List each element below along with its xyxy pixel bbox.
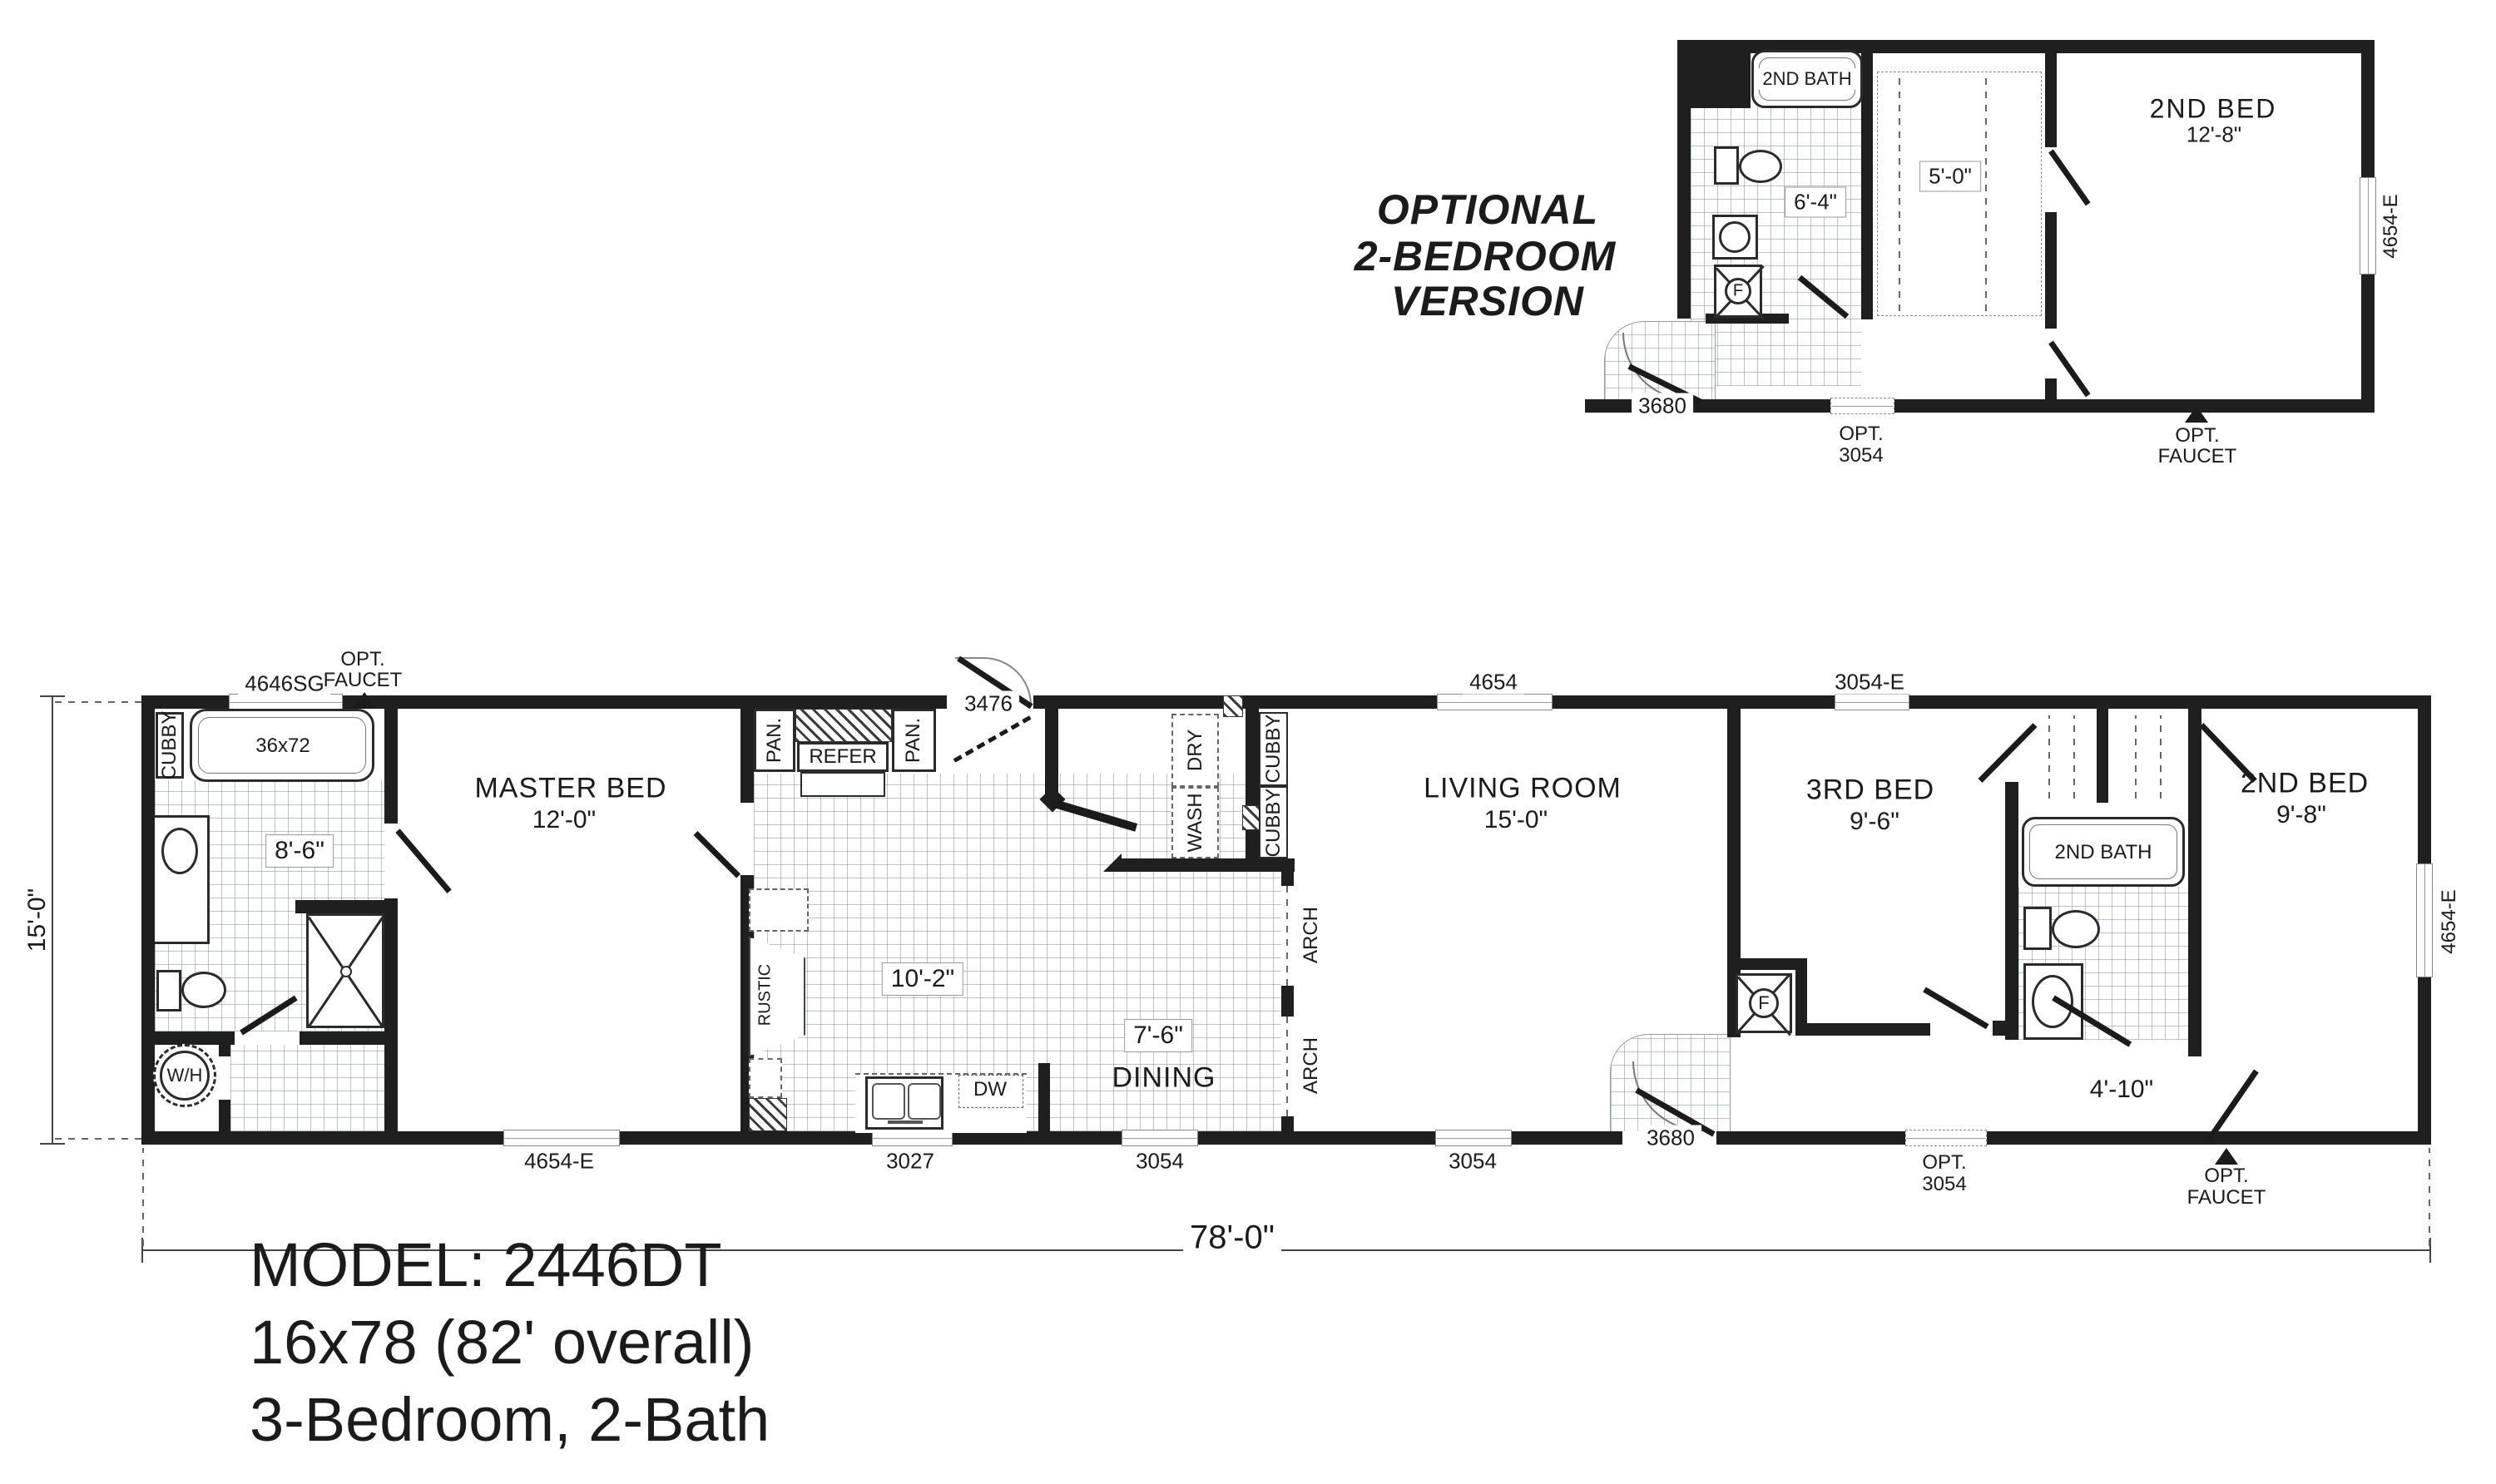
wall-bath-lower-right [300,1031,384,1045]
optional-wall-bottom [1585,399,2375,413]
wall-bath2-right [2188,709,2201,1056]
optional-wall-bath-closet [1861,53,1873,319]
wall-bath-master-lower [384,898,398,1145]
wall-wh-right-lower [219,1100,230,1131]
furnace-label: F [1758,992,1769,1014]
model-config: 3-Bedroom, 2-Bath [250,1384,770,1455]
window-4654e-right [2416,863,2433,977]
depth-dimension-label: 15'-0" [23,882,52,958]
optional-wall-closet-bed-3 [2045,378,2057,399]
dryer-label: DRY [1184,730,1207,771]
optional-bath-dim: 6'-4" [1785,187,1846,218]
depth-dimension-tick-top [40,695,65,697]
door-3476-label: 3476 [958,691,1019,717]
bed3-door [1923,987,1988,1029]
optional-bed-label: 2ND BED [2150,94,2277,125]
optional-window-opt3054-label1: OPT. [1839,423,1883,446]
bath-cubby-label: CUBBY [158,711,181,780]
refrigerator-body [800,772,885,797]
optional-window-opt3054 [1830,398,1894,414]
master-bed-door [694,831,741,878]
optional-wall-closet-bed-1 [2045,40,2057,147]
bath2-sink-bowl [2032,975,2073,1028]
wall-hall-bed3 [1795,1023,1930,1036]
wall-utility-cap [1103,853,1122,872]
door-3680-label: 3680 [1640,1125,1701,1151]
optional-wall-left [1677,40,1691,319]
window-4654-top [1437,694,1553,710]
optional-faucet-label1: OPT. [2175,424,2219,448]
depth-dimension-tick-bottom [40,1143,65,1145]
window-3054-living [1435,1130,1512,1146]
window-opt3054-main-label1: OPT. [1922,1151,1966,1175]
kitchen-cabinet-hatch-corner [749,1098,787,1131]
bed2-label: 2ND BED [2241,768,2369,800]
kitchen-cabinet-lower [749,1058,782,1098]
kitchen-hutch-label: RUSTIC [756,964,775,1026]
optional-window-opt3054-label2: 3054 [1839,444,1883,467]
optional-entry-door-label: 3680 [1632,393,1693,419]
pantry-left-label: PAN. [763,718,786,763]
master-toilet-bowl [181,972,226,1008]
opt-faucet-right-label2: FAUCET [2187,1186,2266,1209]
bath2-toilet-bowl [2052,910,2100,948]
optional-toilet-bowl [1739,150,1782,183]
window-opt3054-main [1905,1130,1987,1146]
wall-closet-mid [2097,709,2108,803]
arch-opening-1 [1286,886,1288,986]
window-3054-dining [1122,1130,1198,1146]
optional-plan-heading-line3: VERSION [1391,277,1584,325]
master-bath-dim: 8'-6" [265,834,334,868]
closet3-rod-a [2048,715,2050,799]
optional-bath-label: 2ND BATH [1756,68,1858,90]
wall-hall-stub [1993,1021,2005,1036]
window-4646sg-label: 4646SG [238,671,330,697]
opt-faucet-right-label1: OPT. [2204,1165,2248,1188]
wall-utility-bottom [1122,858,1295,872]
bed3-label: 3RD BED [1806,774,1934,807]
main-wall-top [141,695,2431,709]
window-opt3054-main-label2: 3054 [1922,1173,1966,1196]
arch-1-label: ARCH [1300,907,1323,963]
living-room-label: LIVING ROOM [1424,773,1622,805]
master-shower [306,913,384,1028]
window-3054-living-label: 3054 [1449,1149,1497,1175]
wall-utility [1246,709,1259,858]
water-heater-label: W/H [167,1065,203,1086]
title-block: MODEL: 2446DT 16x78 (82' overall) 3-Bedr… [250,1229,770,1455]
wall-kitchen-dining-stub [1038,1063,1050,1131]
living-room-dim: 15'-0" [1484,806,1548,834]
wall-furnace-right [1795,958,1807,1023]
optional-plan-heading-line2: 2-BEDROOM [1354,232,1617,280]
optional-faucet-label2: FAUCET [2158,445,2237,468]
master-sink-bowl [161,828,198,874]
optional-closet-rod-2 [1985,75,1987,311]
floor-plan-sheet: OPTIONAL 2-BEDROOM VERSION 2ND BATH [0,0,2496,1484]
wall-arch-seg3 [1281,1116,1294,1131]
pantry-right-label: PAN. [902,718,925,763]
bath2-toilet-tank [2023,907,2052,950]
hall-tile-floor [230,1045,384,1131]
window-4654e-bottom-label: 4654-E [524,1149,594,1175]
fridge-cabinet-hatch [795,709,892,742]
window-3054e-top [1835,694,1909,710]
master-bed-dim: 12'-0" [532,806,596,834]
wall-shower-top [295,900,384,913]
wall-master-kitchen-upper [740,695,754,803]
wall-arch-seg2 [1281,986,1294,1017]
optional-window-4654e-label: 4654-E [2380,194,2403,258]
window-4654e-right-label: 4654-E [2438,889,2461,953]
refrigerator-label: REFER [809,745,876,769]
window-3054-dining-label: 3054 [1136,1149,1184,1175]
optional-window-4654e [2360,177,2376,275]
optional-sink-bowl [1719,221,1751,253]
optional-toilet-tank [1714,146,1739,185]
optional-plan-heading-line1: OPTIONAL [1377,185,1598,234]
dining-dim: 7'-6" [1124,1019,1192,1052]
depth-dimension-line [52,695,53,1145]
closet2-rod-a [2135,715,2137,799]
master-bath-door [395,829,451,893]
opt-faucet-left-label2: FAUCET [324,669,403,692]
width-dimension-label: 78'-0" [1183,1219,1281,1257]
kitchen-cabinet-upper [749,888,809,932]
opt-faucet-right-marker-icon [2215,1148,2238,1165]
dishwasher-label: DW [973,1078,1007,1101]
master-toilet-tank [156,970,181,1012]
master-bed-label: MASTER BED [474,773,666,805]
bed2-dim: 9'-8" [2276,801,2326,829]
width-extension-left [142,1148,144,1246]
dining-label: DINING [1112,1062,1216,1095]
optional-closet-rod-1 [1899,75,1900,311]
depth-extension-top [55,701,141,703]
top-wall-hatch-post [1223,695,1243,717]
arch-2-label: ARCH [1300,1037,1323,1094]
width-extension-right [2429,1148,2430,1246]
closet3-rod-b [2073,715,2075,799]
bed3-dim: 9'-6" [1850,808,1899,836]
opt-faucet-left-label1: OPT. [340,648,384,671]
wall-bath-lower-left [155,1031,235,1045]
optional-bed-dim: 12'-8" [2186,122,2241,148]
optional-furnace-label: F [1733,282,1743,301]
depth-extension-bottom [55,1138,141,1140]
main-wall-bottom [141,1131,2431,1145]
model-size: 16x78 (82' overall) [250,1307,770,1378]
window-4654e-bottom [503,1130,620,1146]
closet3-door [1978,723,2038,783]
optional-closet-outline [1877,72,2042,316]
wall-bath2-left [2005,782,2018,1040]
window-3054e-top-label: 3054-E [1828,670,1911,695]
bath2-label: 2ND BATH [2048,841,2159,864]
cubby-1-label: CUBBY [1262,715,1285,784]
door-3476-swing-dashed [953,715,1032,762]
closet2-rod-b [2160,715,2162,799]
wall-bath-master-upper [384,695,398,824]
arch-opening-2 [1286,1017,1288,1116]
opt-faucet-left-marker-icon [353,692,376,709]
kitchen-dim: 10'-2" [882,962,963,996]
optional-wall-closet-bed-2 [2045,212,2057,329]
optional-faucet-marker-icon [2185,406,2208,423]
kitchen-sink [865,1076,943,1130]
wall-wh-right-upper [219,1045,230,1056]
hall-dim: 4'-10" [2090,1076,2153,1104]
cubby-2-label: CUBBY [1262,789,1285,858]
optional-closet-dim: 5'-0" [1919,161,1981,192]
wall-arch-seg1 [1281,872,1294,886]
window-3027-label: 3027 [886,1149,934,1175]
optional-closet-door-1 [2048,149,2090,205]
model-number: MODEL: 2446DT [250,1229,770,1300]
window-4654-top-label: 4654 [1463,670,1524,695]
master-bathtub-size: 36x72 [249,735,316,758]
optional-corner-block [1691,53,1751,108]
washer-label: WASH [1184,793,1207,852]
